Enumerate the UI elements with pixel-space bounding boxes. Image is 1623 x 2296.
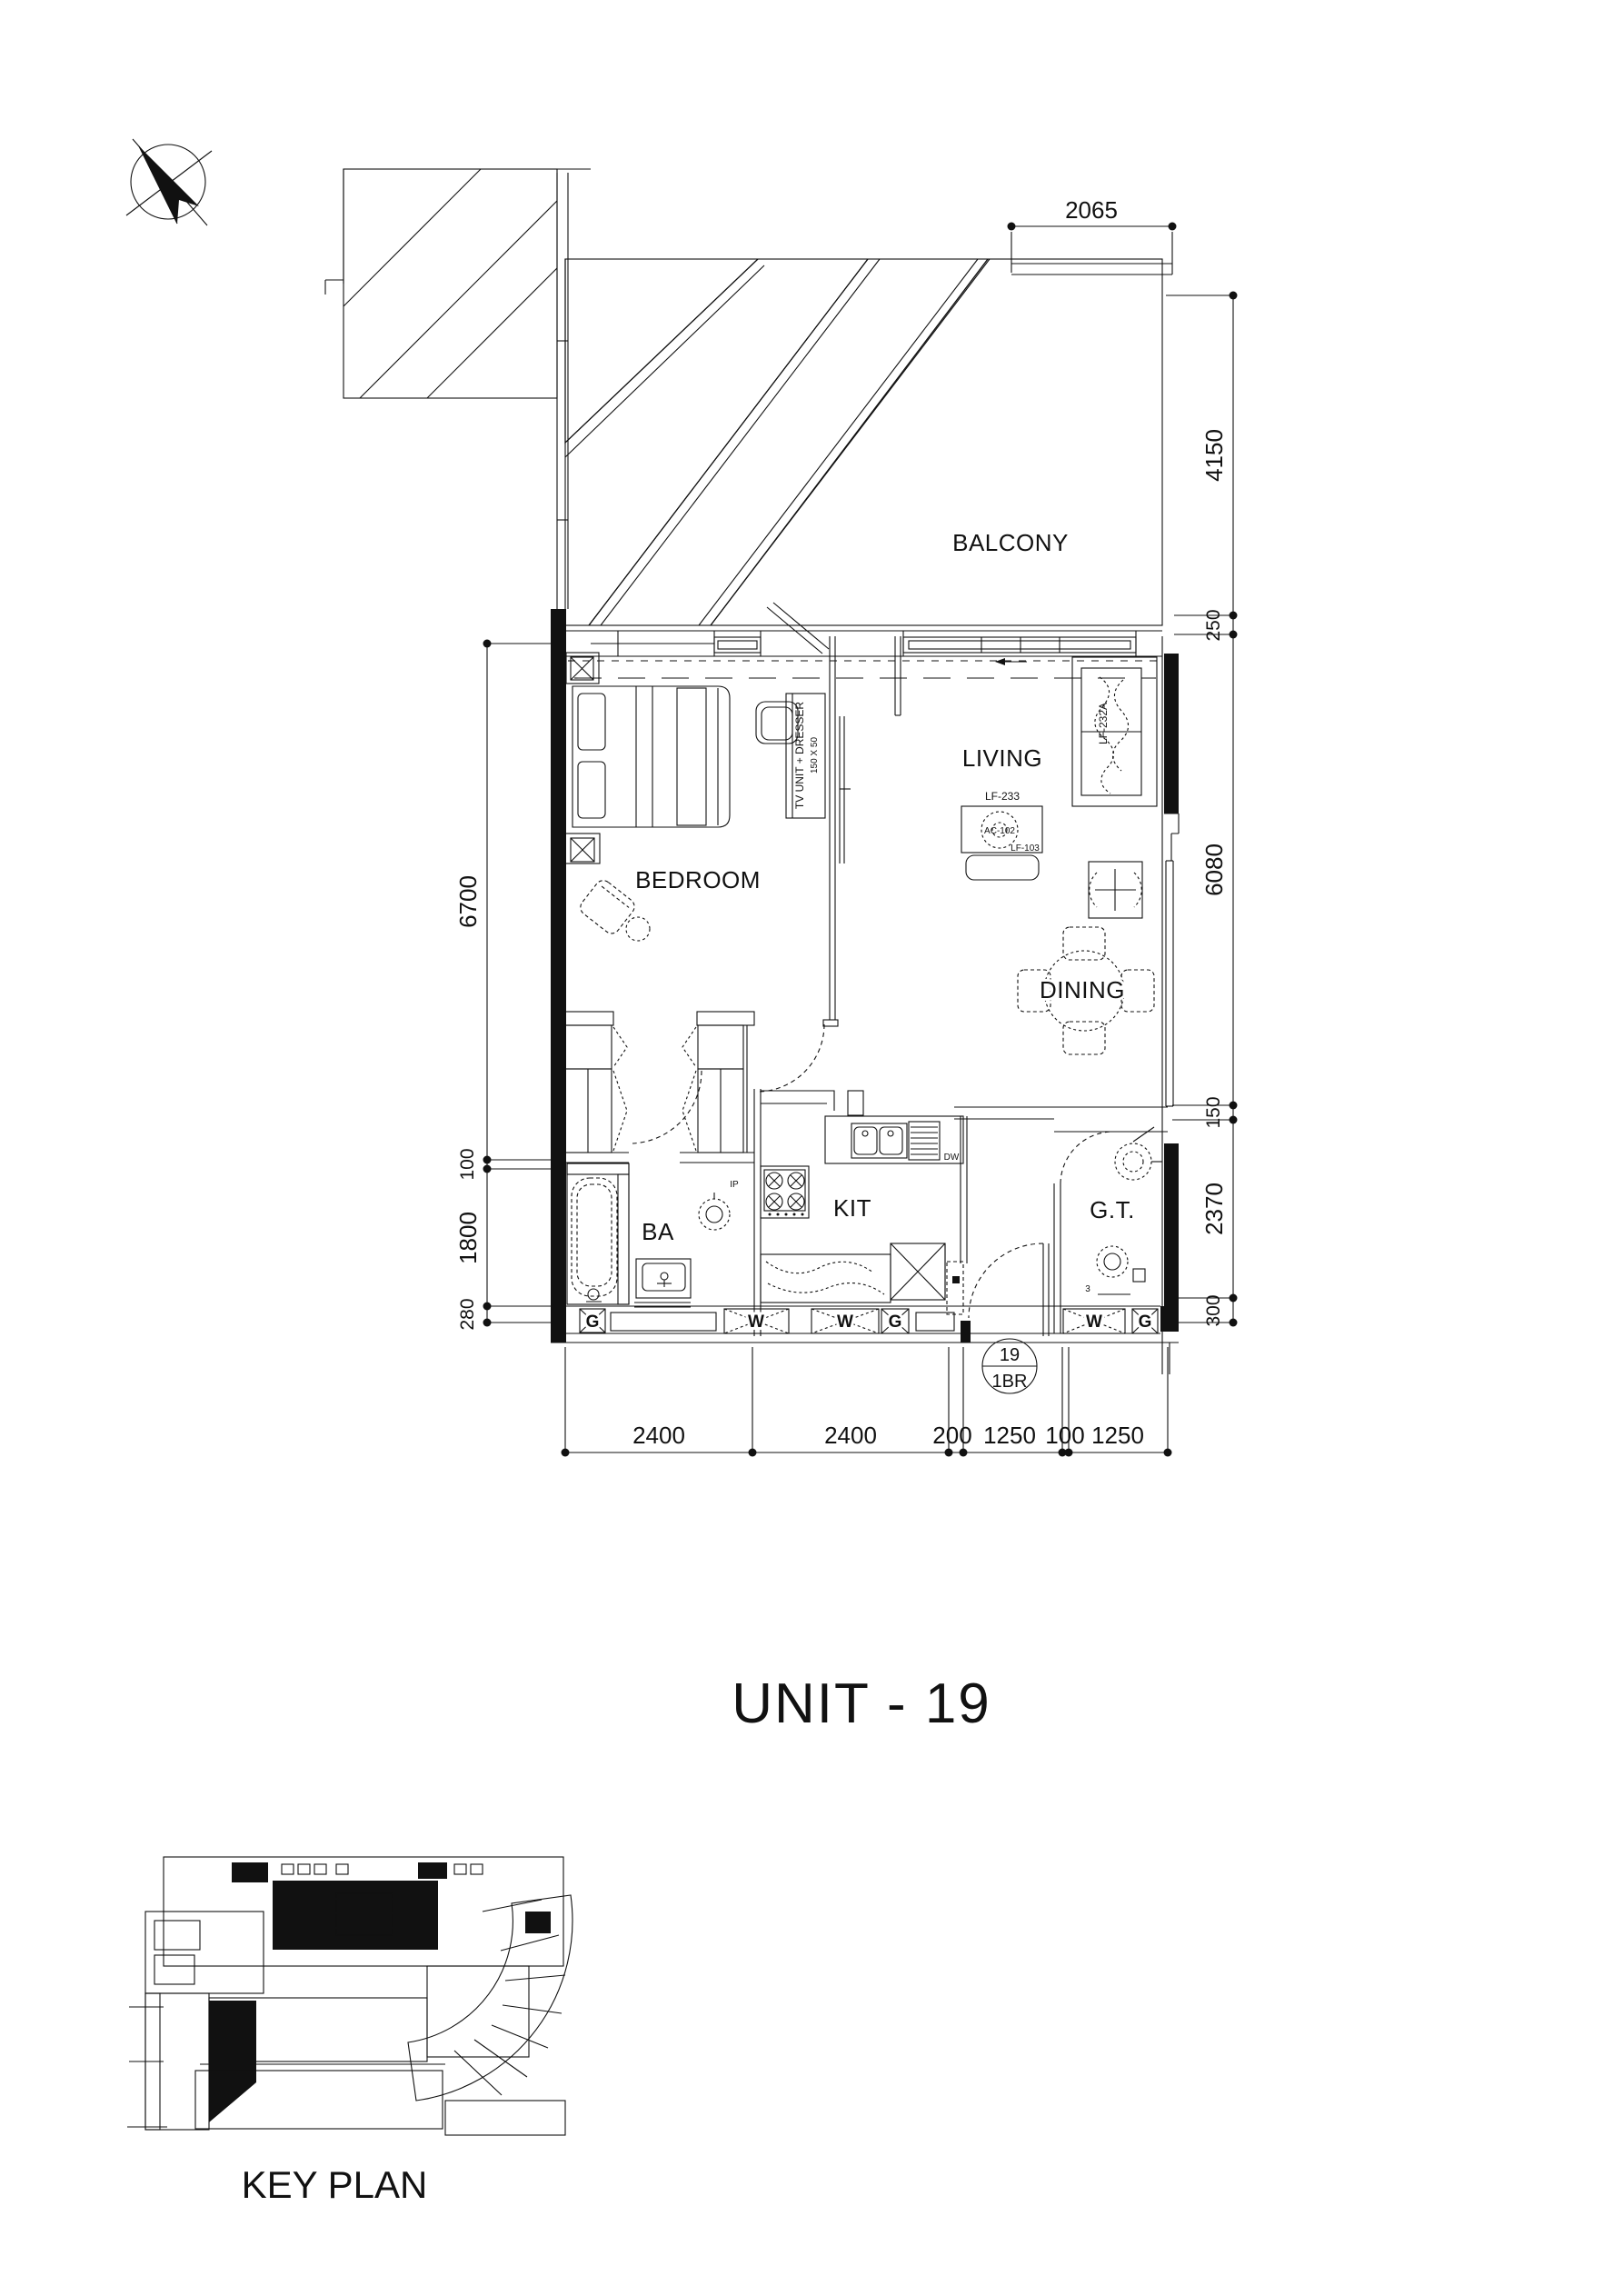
bedroom-label: BEDROOM bbox=[635, 866, 761, 893]
sheet-title: UNIT - 19 bbox=[732, 1672, 991, 1735]
dishwasher-tag: DW bbox=[944, 1153, 960, 1163]
closet-g-label: G bbox=[586, 1313, 600, 1332]
dimension-left: 6700 100 1800 280 bbox=[454, 640, 551, 1331]
table-tag: LF-103 bbox=[1011, 844, 1040, 854]
dim-100: 100 bbox=[1045, 1422, 1084, 1449]
floor-plan-drawing: BALCONY bbox=[0, 0, 1623, 2296]
dresser-chair bbox=[756, 702, 798, 744]
bath-tag: IP bbox=[730, 1180, 739, 1190]
bedroom-area: TV UNIT + DRESSER 150 X 50 BEDROOM bbox=[565, 653, 825, 941]
closet-g-label: G bbox=[889, 1313, 902, 1332]
dim-1250: 1250 bbox=[983, 1422, 1036, 1449]
entry-door-arc bbox=[969, 1243, 1043, 1318]
dimension-bottom: 2400 2400 200 1250 100 1250 bbox=[562, 1347, 1172, 1457]
kitchen-label: KIT bbox=[833, 1194, 871, 1222]
kitchen-lower-counter bbox=[761, 1254, 891, 1303]
dim-150: 150 bbox=[1203, 1096, 1224, 1128]
dim-250: 250 bbox=[1203, 609, 1224, 641]
adjacent-balcony-hatch bbox=[344, 169, 557, 398]
closet-g-label: G bbox=[1139, 1313, 1152, 1332]
bathroom-door-arc bbox=[632, 1071, 702, 1143]
dim-100: 100 bbox=[457, 1148, 478, 1180]
dimension-top: 2065 bbox=[1008, 196, 1177, 275]
dim-2400: 2400 bbox=[632, 1422, 685, 1449]
balcony-walkway-band bbox=[589, 259, 988, 625]
gt-fixture-tag: 3 bbox=[1085, 1284, 1090, 1294]
guest-toilet-label: G.T. bbox=[1090, 1196, 1135, 1223]
dining-chair bbox=[1063, 1022, 1105, 1054]
media-bench bbox=[966, 855, 1039, 880]
dining-chair bbox=[1063, 927, 1105, 960]
balcony-area: BALCONY bbox=[325, 169, 1172, 625]
gt-door-arc bbox=[1060, 1132, 1113, 1183]
door-swings bbox=[632, 1024, 1113, 1336]
dim-6080: 6080 bbox=[1200, 844, 1228, 896]
tv-unit-size-label: 150 X 50 bbox=[810, 737, 820, 774]
closet-row: G W W G W G bbox=[580, 1309, 1158, 1333]
hall-door-arc bbox=[757, 1024, 824, 1092]
dining-chair bbox=[1121, 970, 1154, 1012]
key-plan-thumbnail bbox=[127, 1857, 573, 2135]
north-arrow-icon bbox=[126, 139, 212, 225]
bathroom-area: BA IP bbox=[567, 1163, 739, 1307]
unit-number: 19 bbox=[1000, 1345, 1020, 1365]
bedroom-chair bbox=[577, 877, 637, 936]
dim-2065: 2065 bbox=[1065, 196, 1118, 224]
closet-w-label: W bbox=[1086, 1313, 1102, 1332]
dim-2400: 2400 bbox=[824, 1422, 877, 1449]
closet-w-label: W bbox=[748, 1313, 764, 1332]
tv-unit-label: TV UNIT + DRESSER bbox=[793, 702, 806, 809]
dim-300: 300 bbox=[1203, 1294, 1224, 1326]
balcony-label: BALCONY bbox=[952, 529, 1069, 556]
dim-1250: 1250 bbox=[1091, 1422, 1144, 1449]
dim-280: 280 bbox=[457, 1298, 478, 1330]
dim-200: 200 bbox=[932, 1422, 971, 1449]
guest-toilet-area: 3 G.T. bbox=[1085, 1127, 1162, 1294]
unit-badge: 19 1BR bbox=[982, 1339, 1037, 1393]
bathroom-label: BA bbox=[642, 1218, 674, 1245]
stove bbox=[761, 1166, 809, 1218]
floor-plan-sheet: BALCONY bbox=[0, 0, 1623, 2296]
gt-toilet bbox=[1097, 1246, 1128, 1277]
gt-basin bbox=[1115, 1143, 1151, 1180]
sofa-tag: LF-232A bbox=[1097, 703, 1110, 744]
dim-6700: 6700 bbox=[454, 875, 482, 928]
kitchen-area: DW KIT bbox=[761, 1116, 963, 1314]
wardrobe-closets bbox=[565, 1012, 754, 1153]
dining-label: DINING bbox=[1040, 976, 1125, 1003]
media-tag: LF-233 bbox=[985, 790, 1020, 803]
ac-tag: AC-102 bbox=[984, 826, 1015, 836]
living-area: LF-232A LF-233 AC-102 LF-103 LIVING bbox=[961, 657, 1157, 918]
living-label: LIVING bbox=[962, 744, 1042, 772]
dining-area: DINING bbox=[1018, 927, 1154, 1054]
bedroom-partition-wall bbox=[823, 636, 901, 1026]
unit-type: 1BR bbox=[992, 1372, 1028, 1392]
dim-2370: 2370 bbox=[1200, 1183, 1228, 1235]
key-plan-label: KEY PLAN bbox=[242, 2163, 428, 2206]
toilet bbox=[699, 1199, 730, 1230]
dim-4150: 4150 bbox=[1200, 429, 1228, 482]
dim-1800: 1800 bbox=[454, 1212, 482, 1264]
closet-w-label: W bbox=[837, 1313, 853, 1332]
